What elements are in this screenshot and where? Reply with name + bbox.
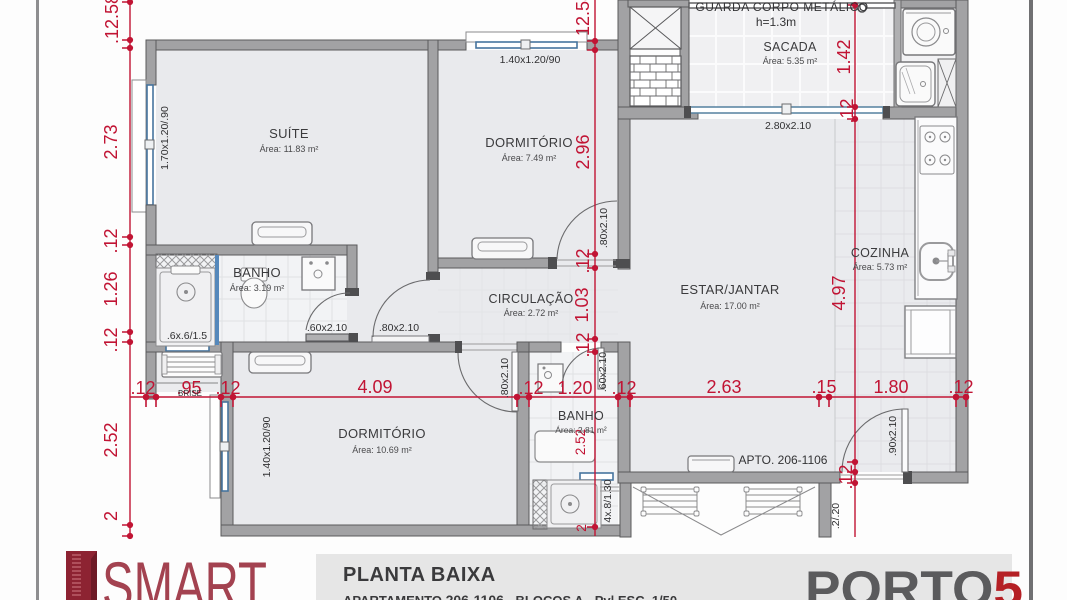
svg-text:CIRCULAÇÃO: CIRCULAÇÃO [489,292,574,306]
svg-text:PLANTA BAIXA: PLANTA BAIXA [343,564,496,586]
svg-text:Área: 17.00 m²: Área: 17.00 m² [700,301,760,311]
svg-text:COZINHA: COZINHA [851,246,910,260]
svg-text:.80x2.10: .80x2.10 [499,358,511,398]
svg-text:4x.8/1.30: 4x.8/1.30 [602,479,614,522]
svg-text:GUARDA CORPO METÁLICO: GUARDA CORPO METÁLICO [695,0,868,14]
svg-text:1.40x1.20/90: 1.40x1.20/90 [261,416,273,477]
svg-text:2.73: 2.73 [101,124,121,159]
svg-text:Área: 3.19 m²: Área: 3.19 m² [230,283,285,293]
svg-text:.12: .12 [215,378,240,398]
svg-text:.12: .12 [518,378,543,398]
svg-text:.12: .12 [573,248,593,273]
svg-text:ESTAR/JANTAR: ESTAR/JANTAR [680,282,779,297]
svg-text:DORMITÓRIO: DORMITÓRIO [485,135,573,150]
svg-text:h=1.3m: h=1.3m [756,15,796,29]
svg-text:2: 2 [101,511,121,521]
svg-text:.12: .12 [836,464,856,489]
svg-text:.12.58: .12.58 [102,0,122,44]
svg-text:.12: .12 [101,228,121,253]
svg-text:1.03: 1.03 [572,287,592,322]
svg-text:.90x2.10: .90x2.10 [887,416,899,456]
svg-text:12.58: 12.58 [573,0,593,36]
svg-text:Área: 5.35 m²: Área: 5.35 m² [763,56,818,66]
svg-text:.2/.20: .2/.20 [830,503,842,529]
svg-text:2.52: 2.52 [101,422,121,457]
svg-text:1.80: 1.80 [873,377,908,397]
svg-text:DORMITÓRIO: DORMITÓRIO [338,426,426,441]
svg-text:2.80x2.10: 2.80x2.10 [765,120,811,132]
svg-text:PORTO5: PORTO5 [805,561,1023,600]
svg-text:APTO. 206-1106: APTO. 206-1106 [739,453,828,467]
svg-text:.12: .12 [130,378,155,398]
svg-text:.60x2.10: .60x2.10 [597,352,609,392]
svg-text:.15: .15 [811,377,836,397]
svg-text:2: 2 [573,524,589,532]
svg-text:1.70x1.20/.90: 1.70x1.20/.90 [159,106,171,170]
svg-text:4.09: 4.09 [357,377,392,397]
svg-text:.12: .12 [101,327,121,352]
svg-text:Área: 7.49 m²: Área: 7.49 m² [502,153,557,163]
svg-text:BANHO: BANHO [558,409,604,423]
svg-text:.6x.6/1.5: .6x.6/1.5 [167,330,207,342]
svg-text:Área: 5.73 m²: Área: 5.73 m² [853,262,908,272]
svg-text:Área: 2.72 m²: Área: 2.72 m² [504,308,559,318]
svg-text:.80x2.10: .80x2.10 [598,208,610,248]
svg-text:SMART: SMART [102,548,267,600]
svg-text:.12: .12 [573,332,593,357]
svg-text:Área: 10.69 m²: Área: 10.69 m² [352,445,412,455]
svg-text:.60x2.10: .60x2.10 [307,322,347,334]
svg-text:.12: .12 [611,378,636,398]
svg-text:2.63: 2.63 [706,377,741,397]
svg-text:1.42: 1.42 [834,39,854,74]
svg-text:APARTAMENTO 206-1106 - BLOCOS: APARTAMENTO 206-1106 - BLOCOS A - Pv| ES… [343,592,677,600]
svg-text:SUÍTE: SUÍTE [269,126,309,141]
svg-text:.12: .12 [948,377,973,397]
svg-text:.80x2.10: .80x2.10 [379,322,419,334]
svg-text:.12: .12 [837,98,857,123]
svg-text:Área: 11.83 m²: Área: 11.83 m² [260,144,319,154]
svg-text:2.96: 2.96 [573,134,593,169]
svg-text:1.40x1.20/90: 1.40x1.20/90 [500,54,561,66]
svg-text:Área: 2.81 m²: Área: 2.81 m² [555,425,607,435]
svg-text:SACADA: SACADA [763,40,817,54]
svg-text:BANHO: BANHO [233,265,281,280]
svg-text:1.20: 1.20 [557,378,592,398]
svg-text:4.97: 4.97 [829,275,849,310]
svg-text:1.26: 1.26 [101,271,121,306]
svg-text:BRISE: BRISE [178,389,202,398]
